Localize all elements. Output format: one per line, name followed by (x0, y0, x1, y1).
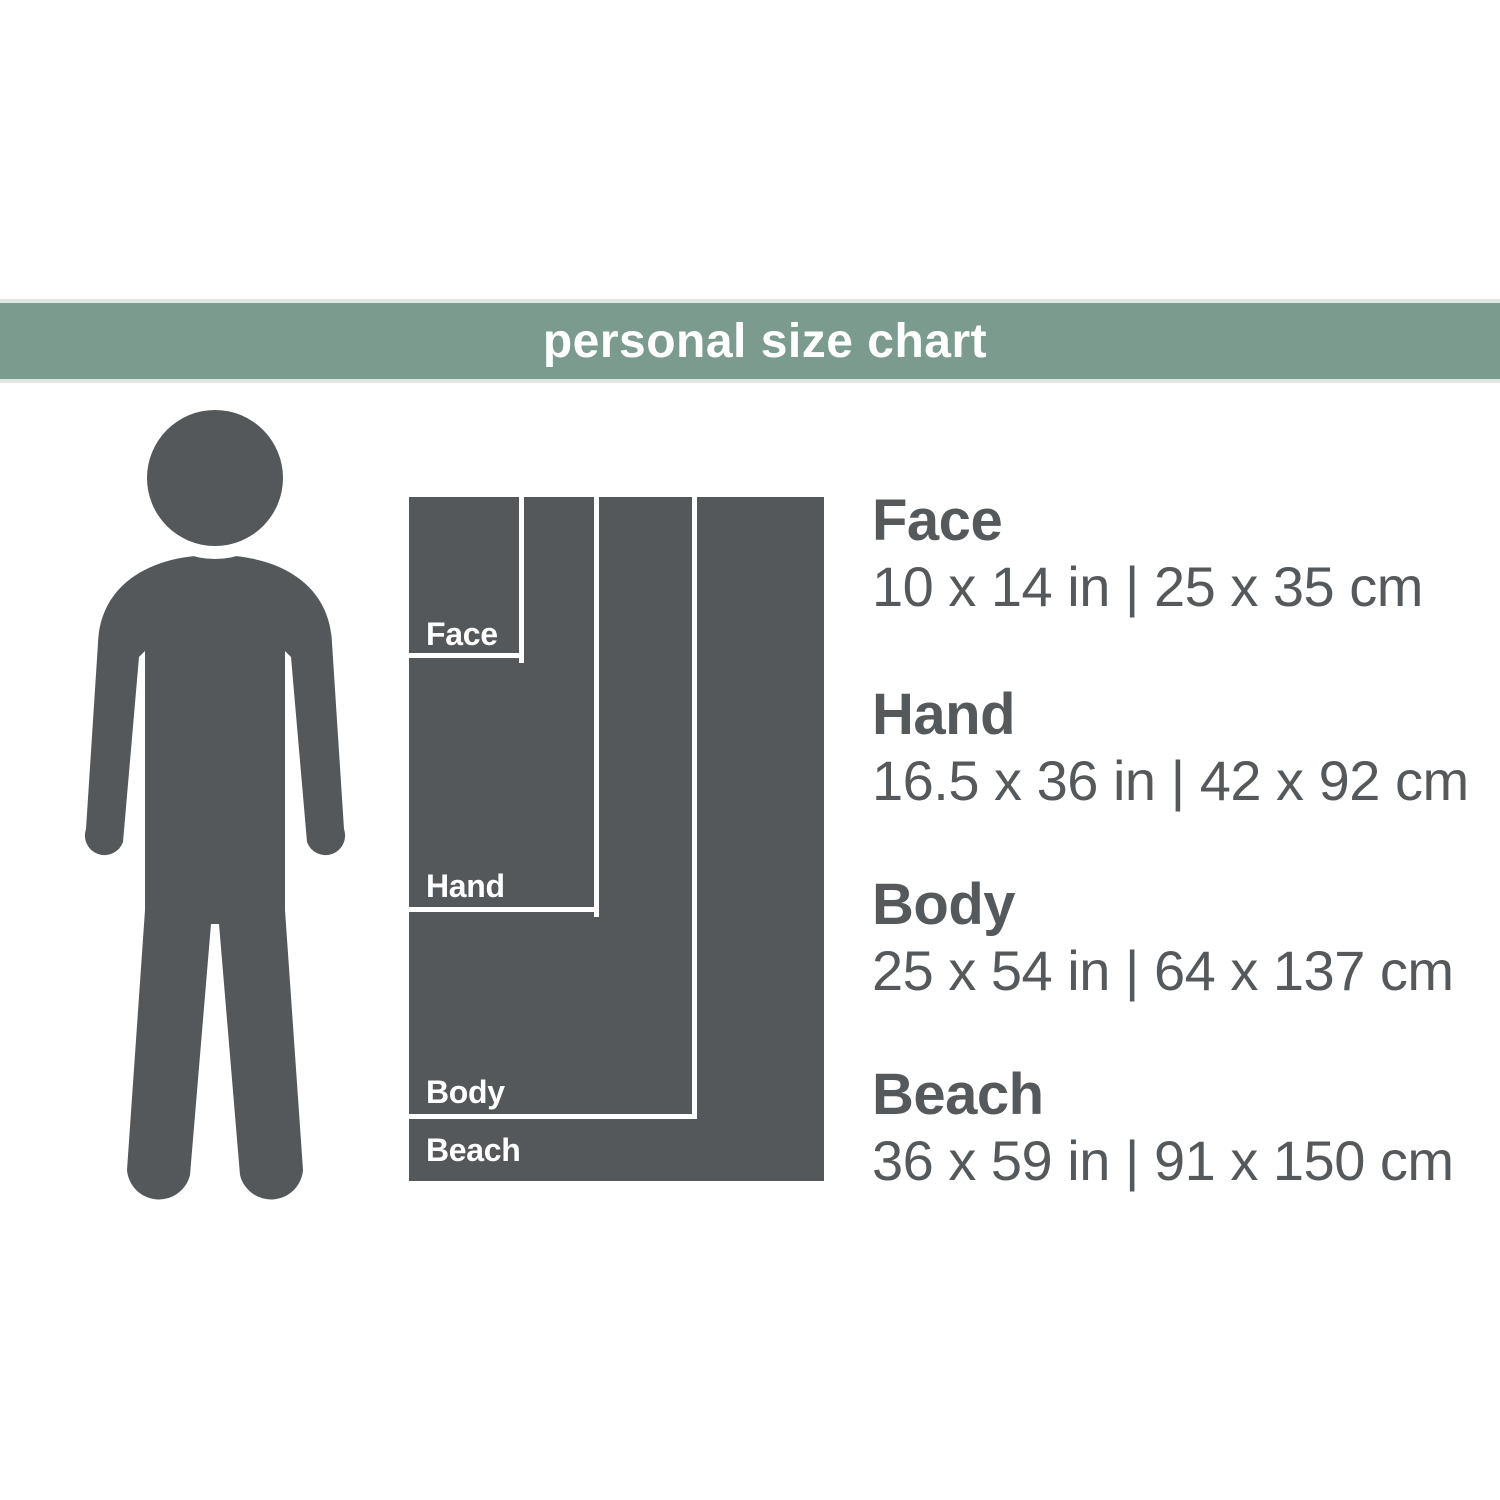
size-info-beach-title: Beach (872, 1064, 1454, 1126)
body-towel-label: Body (426, 1074, 505, 1110)
size-info-hand: Hand 16.5 x 36 in | 42 x 92 cm (872, 684, 1469, 816)
size-info-face-dimensions: 10 x 14 in | 25 x 35 cm (872, 552, 1423, 622)
beach-towel-label: Beach (426, 1132, 521, 1168)
size-info-face: Face 10 x 14 in | 25 x 35 cm (872, 490, 1423, 622)
size-info-beach-dimensions: 36 x 59 in | 91 x 150 cm (872, 1126, 1454, 1196)
hand-towel-label: Hand (426, 868, 505, 904)
hand-towel-right-divider (594, 497, 599, 917)
face-towel-right-divider (519, 497, 524, 663)
size-info-hand-dimensions: 16.5 x 36 in | 42 x 92 cm (872, 746, 1469, 816)
size-info-beach: Beach 36 x 59 in | 91 x 150 cm (872, 1064, 1454, 1196)
body-towel-right-divider (692, 497, 697, 1119)
size-info-body-title: Body (872, 874, 1454, 936)
face-towel-label: Face (426, 616, 498, 652)
size-info-hand-title: Hand (872, 684, 1469, 746)
size-info-body-dimensions: 25 x 54 in | 64 x 137 cm (872, 936, 1454, 1006)
face-towel-bottom-divider (409, 653, 524, 658)
personal-size-chart-infographic: personal size chart Face Hand Body Beach… (0, 0, 1500, 1500)
size-info-body: Body 25 x 54 in | 64 x 137 cm (872, 874, 1454, 1006)
size-info-face-title: Face (872, 490, 1423, 552)
hand-towel-bottom-divider (409, 907, 599, 912)
body-towel-bottom-divider (409, 1114, 697, 1119)
